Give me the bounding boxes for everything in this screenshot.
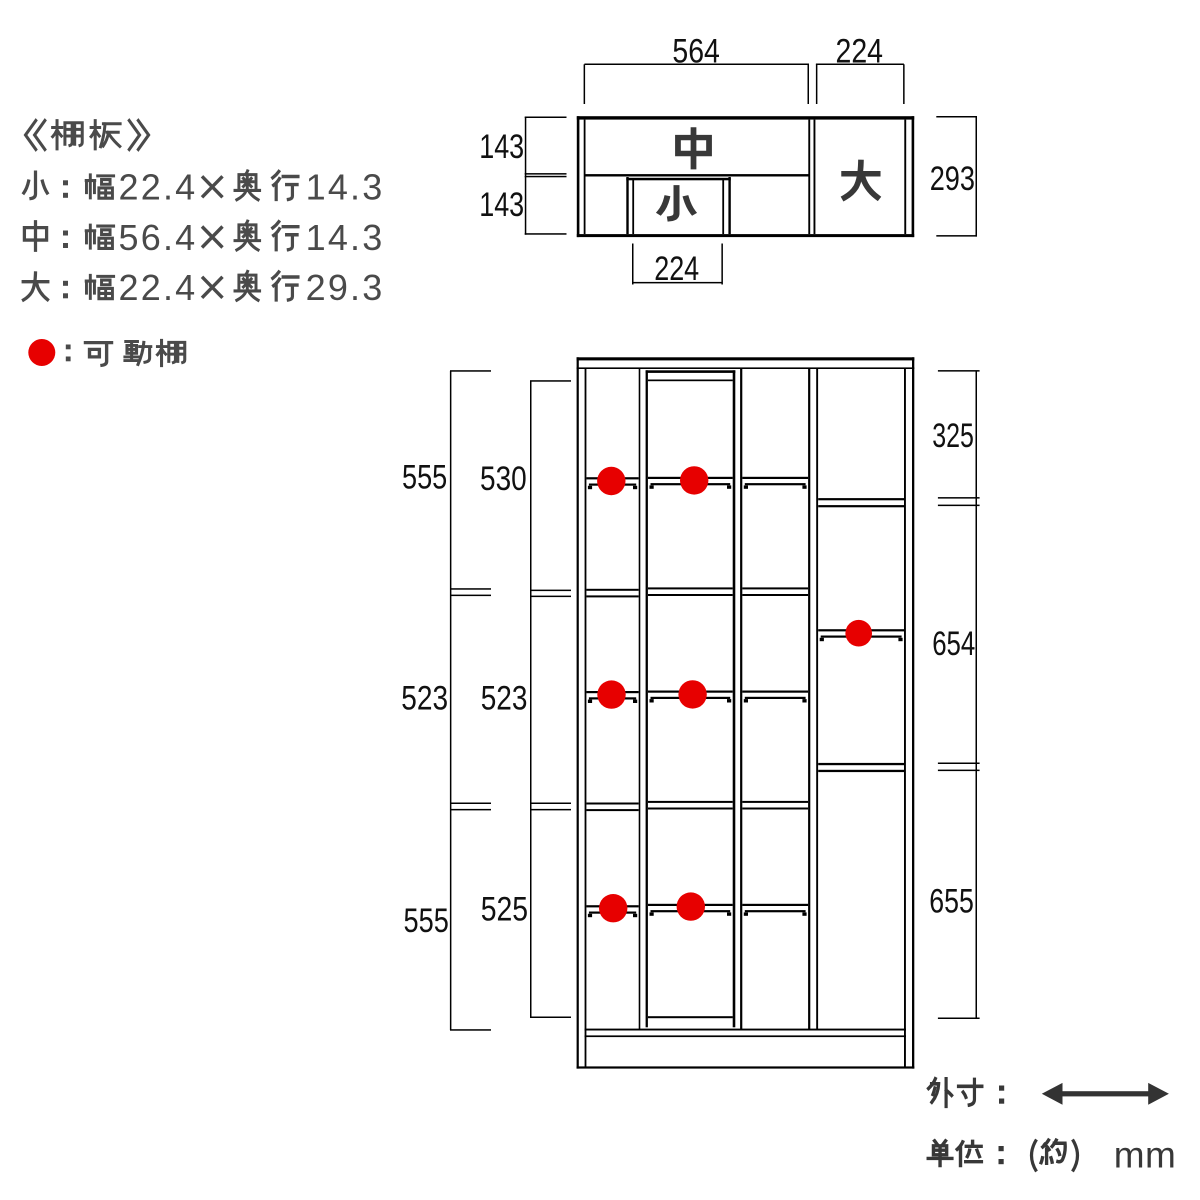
svg-text:523: 523 <box>481 679 528 717</box>
svg-text:523: 523 <box>401 679 448 717</box>
svg-text:555: 555 <box>404 902 449 940</box>
svg-text:654: 654 <box>932 625 975 663</box>
svg-text:14.3: 14.3 <box>306 217 385 258</box>
svg-text:655: 655 <box>929 883 974 921</box>
svg-text:22.4: 22.4 <box>119 267 198 308</box>
svg-text:530: 530 <box>480 460 527 498</box>
svg-text:224: 224 <box>654 250 699 288</box>
svg-text:555: 555 <box>402 459 447 497</box>
svg-text:564: 564 <box>672 33 720 71</box>
svg-text:mm: mm <box>1114 1135 1176 1176</box>
svg-text:525: 525 <box>481 891 528 929</box>
svg-text:14.3: 14.3 <box>306 167 385 208</box>
svg-text:325: 325 <box>932 417 974 455</box>
svg-text:143: 143 <box>479 128 524 166</box>
svg-text:143: 143 <box>479 186 524 224</box>
svg-text:29.3: 29.3 <box>306 267 385 308</box>
svg-text:56.4: 56.4 <box>119 217 198 258</box>
svg-text:293: 293 <box>930 160 975 198</box>
svg-text:22.4: 22.4 <box>119 167 198 208</box>
svg-text:224: 224 <box>836 33 884 71</box>
